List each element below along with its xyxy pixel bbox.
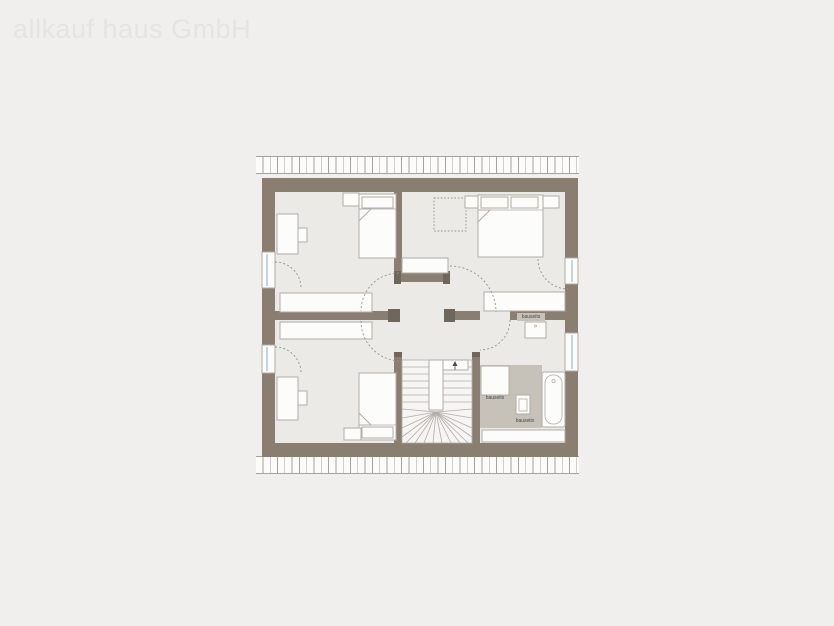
shower-tray bbox=[481, 366, 509, 395]
chair bbox=[298, 228, 307, 242]
desk bbox=[277, 377, 298, 420]
staircase bbox=[402, 360, 472, 443]
nightstand-right bbox=[543, 196, 559, 208]
knee-wall-duct bbox=[482, 430, 565, 442]
wardrobe-upper bbox=[280, 293, 372, 312]
wardrobe bbox=[402, 258, 448, 273]
pillow bbox=[362, 197, 393, 208]
desk bbox=[277, 214, 298, 254]
chair bbox=[298, 391, 307, 405]
wardrobe-lower bbox=[280, 322, 372, 339]
bauseits-niche-label: bauseits bbox=[517, 313, 545, 321]
pillow-left bbox=[481, 197, 508, 208]
stair-spine bbox=[429, 360, 443, 410]
bauseits-bathfloor-label: bauseits bbox=[512, 418, 538, 425]
window-parents bbox=[565, 258, 578, 284]
nightstand bbox=[343, 193, 359, 206]
pillow-right bbox=[511, 197, 538, 208]
window-child2 bbox=[262, 345, 275, 373]
floor-plan-page: { "watermark": "allkauf haus GmbH", "pla… bbox=[0, 0, 834, 626]
pillow bbox=[362, 427, 393, 438]
sink bbox=[525, 322, 546, 338]
window-child1 bbox=[262, 252, 275, 288]
window-bath bbox=[565, 333, 578, 371]
side-table bbox=[344, 428, 361, 440]
nightstand-left bbox=[465, 196, 478, 208]
floor-plan-drawing bbox=[0, 0, 834, 626]
bauseits-shower-label: bauseits bbox=[482, 395, 508, 402]
